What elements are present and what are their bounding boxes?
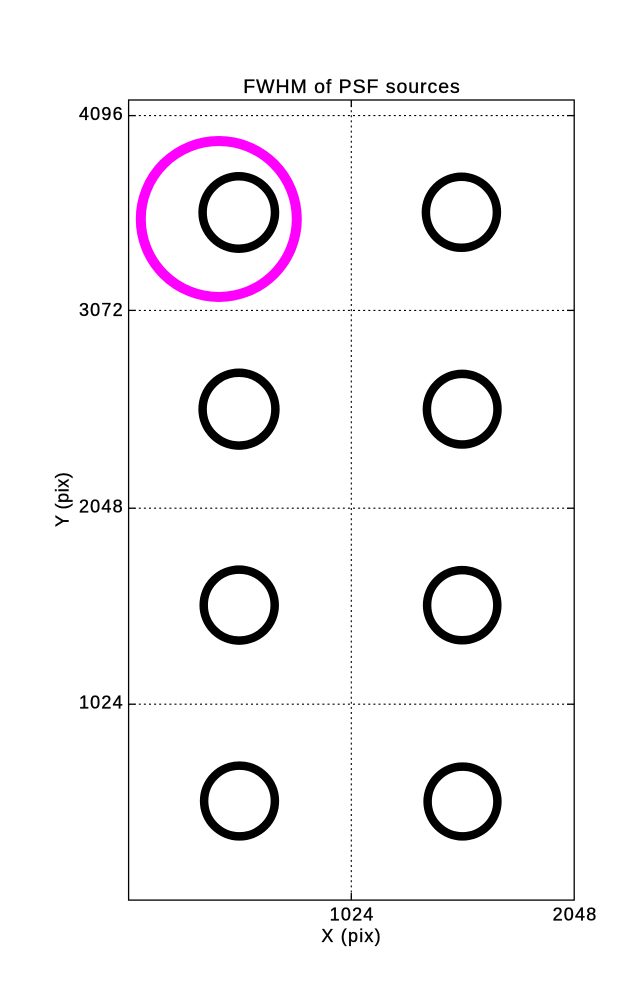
svg-text:Y (pix): Y (pix) [52, 472, 72, 527]
svg-text:2048: 2048 [553, 905, 598, 925]
svg-text:X (pix): X (pix) [321, 926, 381, 946]
svg-text:FWHM of PSF sources: FWHM of PSF sources [243, 76, 460, 98]
svg-text:1024: 1024 [79, 693, 124, 713]
svg-text:4096: 4096 [79, 104, 124, 124]
svg-text:1024: 1024 [330, 905, 375, 925]
svg-text:2048: 2048 [79, 497, 124, 517]
svg-text:3072: 3072 [79, 300, 124, 320]
